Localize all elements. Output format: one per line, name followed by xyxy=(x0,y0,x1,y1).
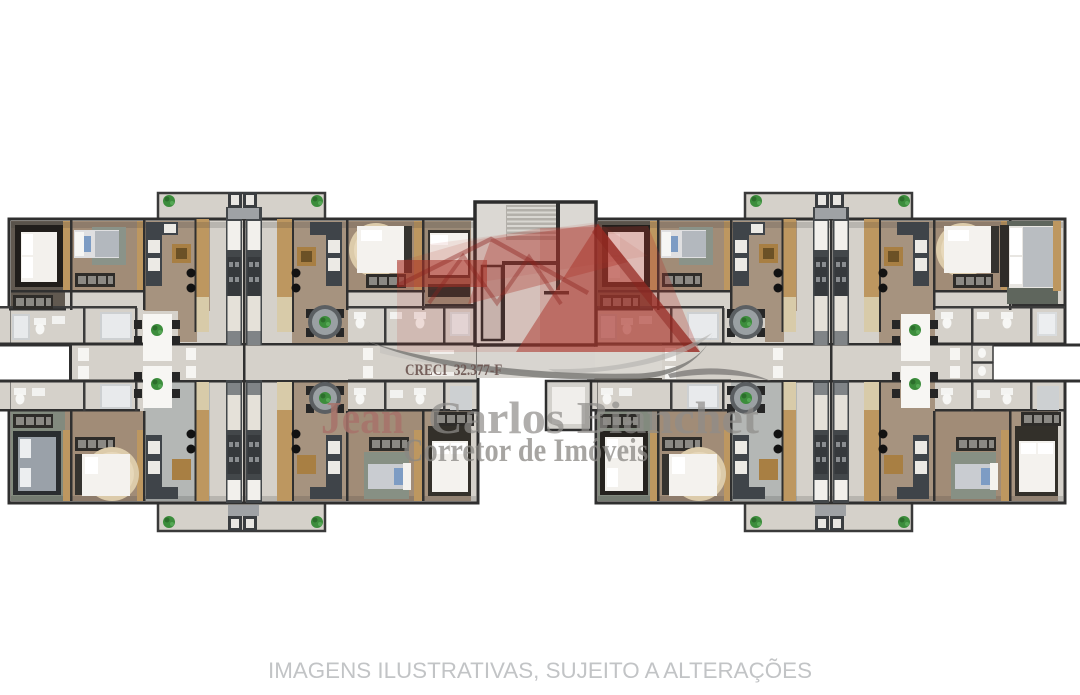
svg-text:CRECI 32.377-F: CRECI 32.377-F xyxy=(405,362,502,379)
svg-text:IMAGENS ILUSTRATIVAS, SUJEITO: IMAGENS ILUSTRATIVAS, SUJEITO A ALTERAÇÕ… xyxy=(268,658,812,683)
svg-text:Jean: Jean xyxy=(321,393,404,443)
svg-text:Corretor de Imóveis: Corretor de Imóveis xyxy=(403,433,648,469)
